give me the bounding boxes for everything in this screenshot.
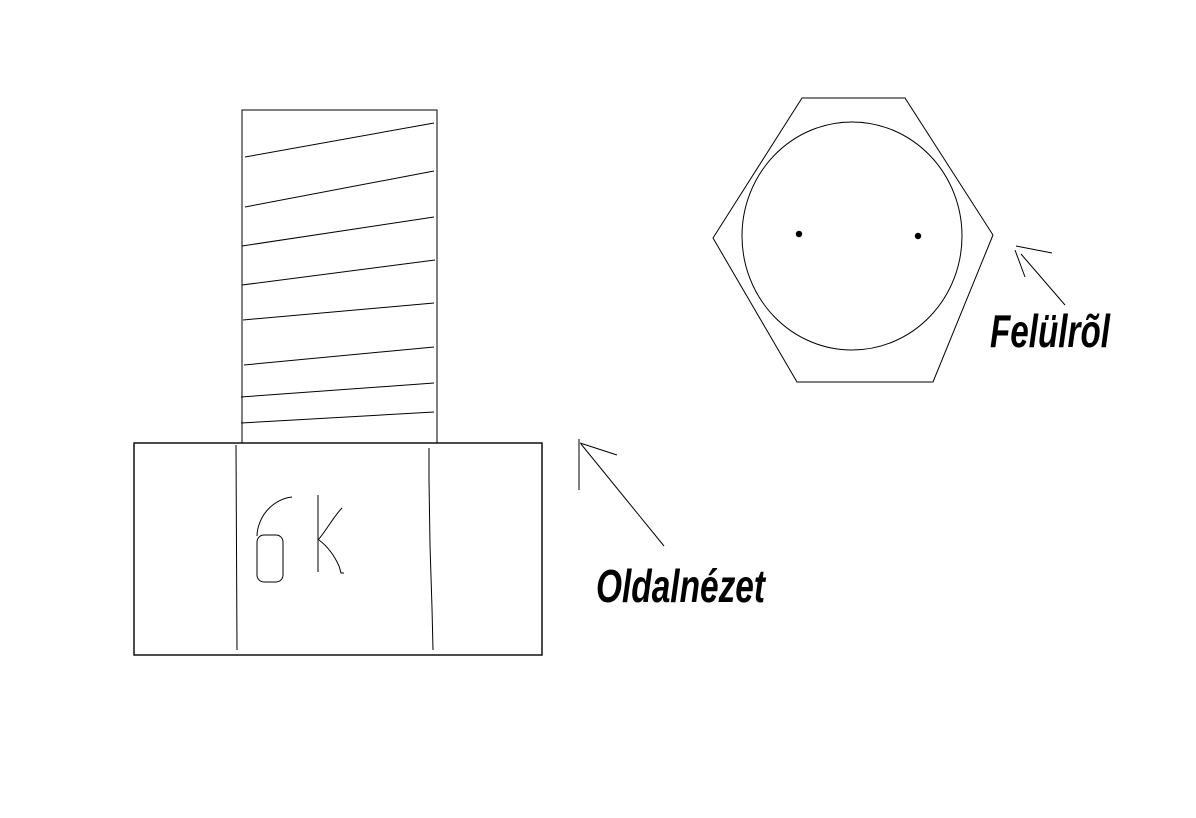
hexagon-outline [713, 98, 993, 382]
head-facet-line-left [236, 445, 237, 650]
letter-k-upper-arm [318, 508, 342, 540]
bolt-head-outline [134, 443, 542, 655]
thread-line [244, 347, 434, 365]
thread-line [245, 123, 434, 157]
thread-line [242, 217, 434, 246]
top-view-arrow-shaft [1021, 254, 1065, 305]
thread-line [241, 412, 434, 423]
top-view-label: Felülrõl [990, 305, 1111, 357]
digit-6-bowl [257, 535, 283, 582]
center-dot-right [915, 233, 921, 239]
drawing-canvas: Oldalnézet Felülrõl [0, 0, 1196, 818]
side-view-label: Oldalnézet [596, 560, 766, 612]
thread-lines [241, 123, 435, 423]
side-view-arrow [579, 439, 664, 546]
thread-line [242, 260, 435, 285]
top-view-arrow [1015, 246, 1065, 305]
top-view-arrow-barb-right [1016, 246, 1052, 253]
thread-line [245, 171, 434, 207]
thread-line [241, 383, 434, 397]
digit-6-stroke [257, 497, 292, 536]
side-view: Oldalnézet [134, 110, 766, 655]
letter-k-lower-leg [319, 540, 344, 573]
head-facet-line-right [429, 448, 433, 650]
head-marking-6k [257, 495, 344, 582]
side-view-arrow-shaft [581, 444, 664, 546]
bolt-shaft-outline [242, 110, 437, 443]
thread-line [243, 303, 434, 320]
top-view: Felülrõl [713, 98, 1111, 382]
head-circle [742, 122, 962, 350]
top-view-arrow-barb-down [1015, 250, 1025, 277]
center-dot-left [796, 231, 802, 237]
